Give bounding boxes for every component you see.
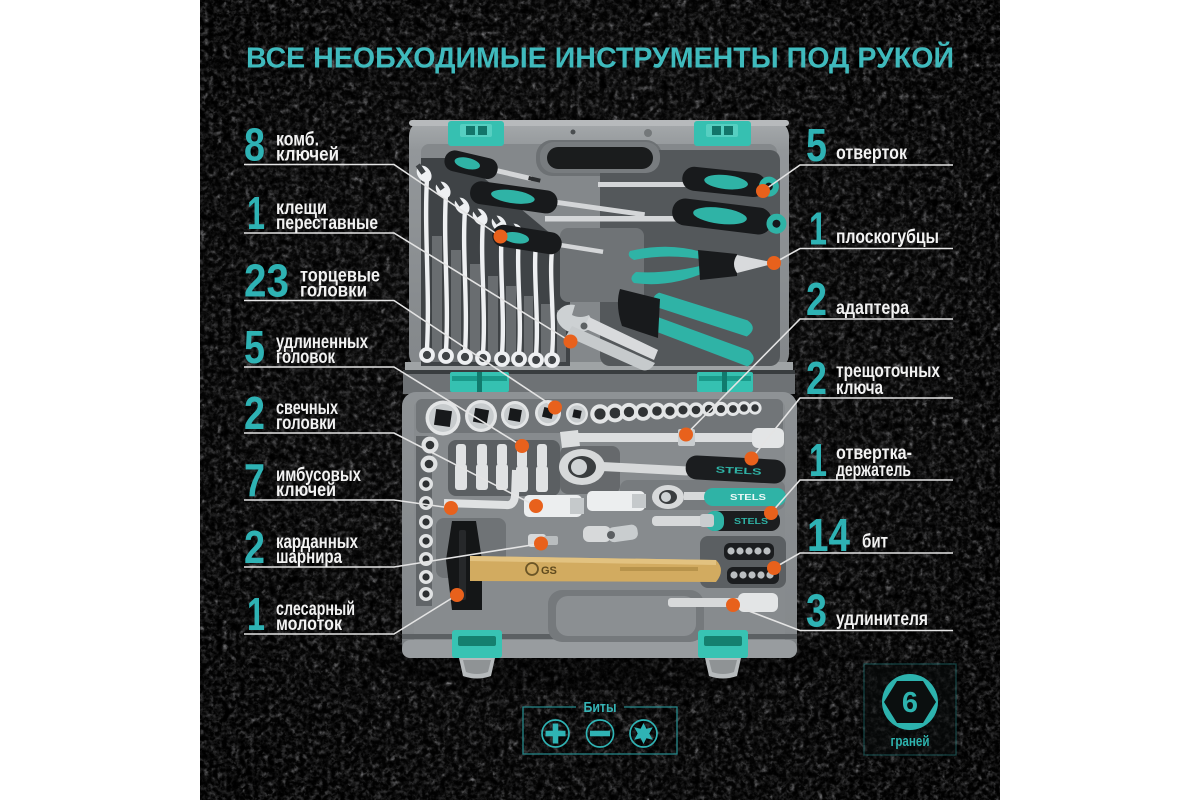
svg-text:ключей: ключей — [276, 480, 336, 501]
svg-text:адаптера: адаптера — [836, 298, 909, 319]
svg-text:головок: головок — [276, 347, 335, 368]
svg-text:ВСЕ НЕОБХОДИМЫЕ ИНСТРУМЕНТЫ ПО: ВСЕ НЕОБХОДИМЫЕ ИНСТРУМЕНТЫ ПОД РУКОЙ — [246, 41, 954, 75]
svg-text:1: 1 — [247, 588, 265, 640]
svg-text:2: 2 — [244, 521, 265, 573]
svg-text:23: 23 — [244, 255, 289, 307]
svg-text:молоток: молоток — [276, 614, 342, 635]
svg-text:8: 8 — [244, 119, 265, 171]
svg-text:5: 5 — [806, 119, 827, 171]
svg-text:STELS: STELS — [730, 493, 767, 502]
svg-text:шарнира: шарнира — [276, 547, 342, 568]
svg-text:14: 14 — [807, 509, 850, 561]
svg-text:граней: граней — [891, 733, 930, 750]
svg-text:головки: головки — [300, 281, 367, 302]
svg-text:головки: головки — [276, 413, 336, 434]
svg-text:5: 5 — [244, 321, 265, 373]
svg-text:плоскогубцы: плоскогубцы — [836, 227, 939, 248]
svg-text:отверток: отверток — [836, 143, 907, 164]
svg-text:2: 2 — [244, 387, 265, 439]
svg-text:STELS: STELS — [734, 517, 769, 526]
svg-text:бит: бит — [862, 532, 888, 553]
svg-text:переставные: переставные — [276, 213, 378, 234]
svg-text:ключа: ключа — [836, 378, 883, 399]
svg-text:GS: GS — [541, 565, 557, 577]
svg-text:1: 1 — [247, 187, 265, 239]
svg-text:2: 2 — [806, 273, 827, 325]
svg-text:ключей: ключей — [276, 145, 339, 166]
svg-text:удлинителя: удлинителя — [836, 609, 928, 630]
svg-text:7: 7 — [244, 454, 265, 506]
svg-text:1: 1 — [809, 203, 827, 255]
svg-text:Биты: Биты — [584, 699, 617, 716]
svg-text:6: 6 — [902, 687, 918, 719]
svg-text:2: 2 — [806, 352, 827, 404]
svg-text:3: 3 — [806, 585, 827, 637]
svg-text:держатель: держатель — [836, 460, 911, 481]
svg-text:1: 1 — [809, 434, 827, 486]
